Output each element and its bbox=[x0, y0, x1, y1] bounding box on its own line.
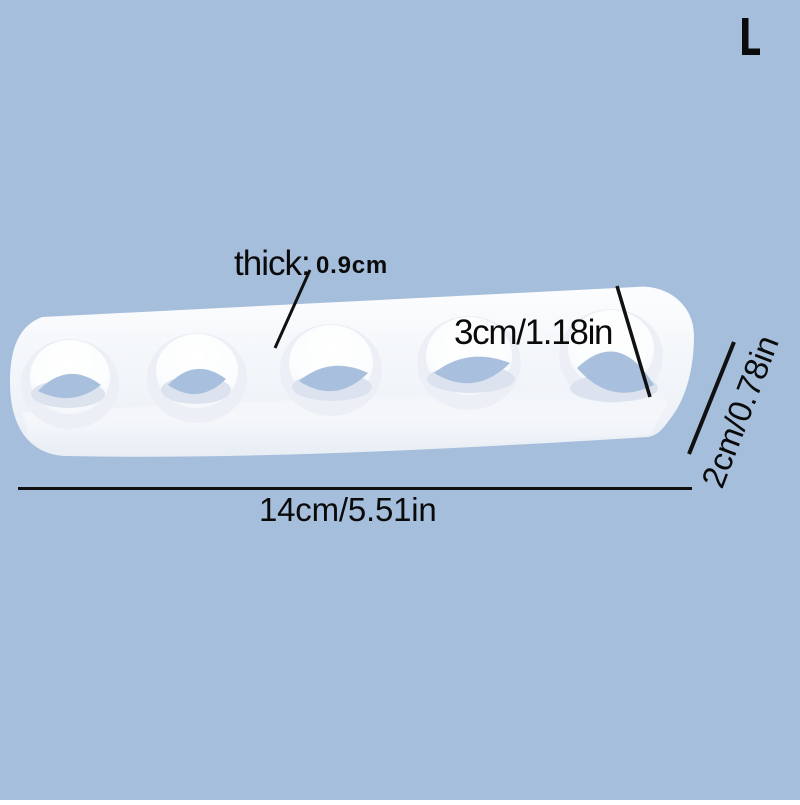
svg-text:3cm/1.18in: 3cm/1.18in bbox=[454, 313, 612, 352]
svg-text:14cm/5.51in: 14cm/5.51in bbox=[259, 491, 437, 528]
svg-text:0.9cm: 0.9cm bbox=[316, 252, 388, 279]
svg-text:thick:: thick: bbox=[234, 244, 310, 283]
